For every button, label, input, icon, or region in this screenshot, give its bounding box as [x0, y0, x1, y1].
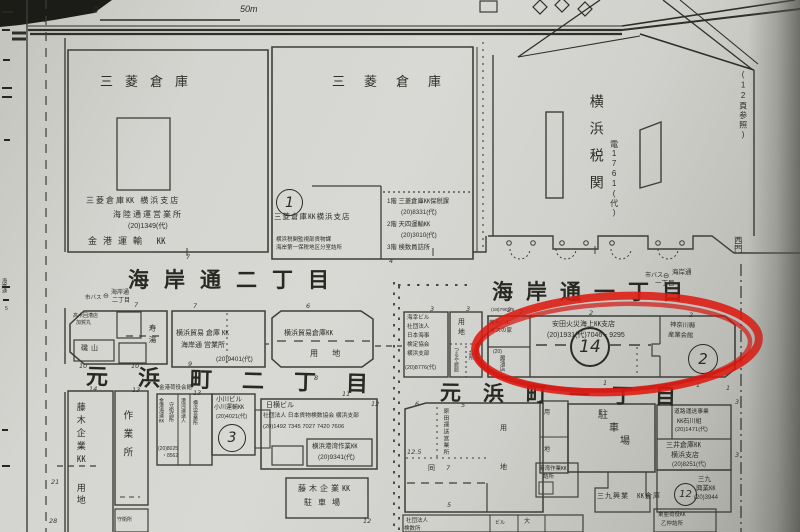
mitsubishi2-name: 三菱倉庫㏍横浜支店 [274, 212, 351, 221]
parking-char-2: 車 [609, 423, 619, 435]
bus-stop-left-chome: 二丁目 [112, 298, 130, 305]
forecourt-trees [507, 241, 685, 246]
kaiko-tel: (20)8776(代) [405, 365, 436, 372]
isoyama-name: 磯山 [81, 345, 101, 353]
yochi2-tenant1: つるや旅館 [453, 347, 459, 372]
kowan-tel: (20)9341(代) [318, 454, 355, 462]
lot-number-12: 12 [679, 489, 692, 500]
lot-number-2: 2 [698, 350, 708, 368]
dimension-number: 7 [446, 464, 450, 472]
cluster-v2: 守衛詰所 [168, 402, 174, 422]
dimension-number: 1 [726, 384, 730, 392]
harada-do: 同 [428, 465, 435, 473]
dimension-number: 3 [735, 398, 739, 406]
page-margin-ticks [2, 12, 13, 466]
toa-line1: 東亜荷役㏍ [658, 512, 686, 519]
dimension-number: 3 [430, 305, 434, 313]
dimension-number: 4 [389, 257, 393, 265]
mitsubishi1-note-1: 三菱倉庫㏍ 横浜支店 [86, 196, 180, 206]
bus-stop-left-agency: 市バス [85, 295, 102, 302]
dimension-number: 7 [134, 301, 138, 309]
kensu-line2: 社団法人 日本貨物検数協会 横浜支部 [263, 413, 359, 420]
bathhouse-name: 寿湯 [148, 324, 157, 347]
railway-lines [12, 0, 800, 70]
lot-number-3: 3 [228, 430, 237, 446]
ogawa-line1: 小川ビル [216, 396, 242, 404]
bottom-center-line2: 検数所 [404, 526, 421, 532]
boeki-line1: 横浜貿易 倉庫 ㏍ [176, 330, 229, 338]
annex-floor3: 3階 検数員詰所 [387, 244, 430, 252]
sanku-line1: 三九 [698, 476, 711, 484]
dimension-number: 7 [186, 253, 190, 261]
parking-char-3: 場 [620, 436, 630, 448]
west-gate-label: 西門 [733, 236, 743, 253]
dimension-number: 2 [589, 309, 593, 317]
dimension-number: 3 [466, 305, 470, 313]
lot-number-1: 1 [285, 195, 294, 211]
block14-cell1-line2: マスの家 [490, 328, 512, 335]
toa-line2: 乙仲詰所 [661, 521, 683, 528]
boeki-line2: 海岸通 営業所 [181, 342, 225, 350]
mitsubishi1-note-4: 金港運輸 ㏍ [88, 236, 172, 247]
bus-stop-right-icon: ⊖ [663, 271, 669, 280]
bus-stop-left-icon: ⊖ [103, 293, 109, 301]
dimension-number: 1 [603, 379, 607, 387]
dimension-number: 8 [314, 374, 318, 382]
forecourt-dotted-arcs [510, 249, 678, 259]
kensu-tel: (20)1492 7345 7027 7420 7606 [263, 424, 344, 431]
block-label-mitsubishi-2: 三菱倉庫 [332, 74, 460, 90]
harada-yo: 用 [500, 425, 507, 433]
lot-circle-2: 2 [688, 344, 718, 374]
dimension-number: 5 [461, 401, 465, 409]
harada-name: 原田運送営業所 [441, 408, 448, 456]
dimension-number: 2 [689, 311, 693, 319]
kaiko-line3: 日本海事 [407, 333, 429, 340]
dimension-number: 14 [89, 385, 97, 393]
mitsui-line1: 三井倉庫㏍ [666, 442, 701, 450]
harada-chi: 地 [500, 464, 507, 472]
dimension-number: 2 [507, 306, 511, 314]
cell540-chi: 地 [544, 447, 550, 454]
bottom-center-line1: 社団法人 [406, 518, 428, 525]
block14-cell2-name: 醤油店 [498, 355, 505, 372]
dimension-number: 11 [342, 390, 350, 398]
fujiki-yochi: 用地 [75, 483, 86, 507]
bottom-cell-c: 大 [524, 519, 530, 526]
block2-line1: 神奈川縣 [670, 322, 695, 330]
lot-circle-14: 14 [570, 327, 610, 367]
margin-side-label: 海岸通 [1, 278, 7, 293]
dimension-number: 10 [79, 362, 87, 370]
ogawa-tel: (20)4021(代) [216, 414, 247, 421]
sanku-line2: 興業㏍ [696, 485, 716, 493]
street-motohamacho-1: 元浜町一丁目 [440, 381, 698, 411]
ishikawa-line1: 道路運送事業 [674, 409, 709, 416]
street-kaigandori-2: 海岸通二丁目 [128, 268, 344, 293]
dimension-number: 10 [131, 362, 139, 370]
sagyo-sub: 守衛所 [117, 517, 132, 523]
map-photo: 0 50m 三菱倉庫 三菱倉庫 三菱倉庫㏍ 横浜支店 海陸通運営業所 (20)1… [0, 0, 800, 532]
dimension-number: 3 [735, 451, 739, 459]
customs-block [473, 55, 800, 259]
cluster-tel2: ・8562 [162, 453, 178, 459]
ogawa-line2: 小川運輸㏍ [214, 405, 244, 412]
dimension-number: 2 [519, 308, 523, 316]
margin-side-number: 5 [5, 306, 8, 312]
isoyama-note1: 高木回漕店 [73, 313, 98, 319]
kaikan-note: 金港荷役会館 [159, 385, 192, 392]
scale-end-label: 50m [240, 4, 258, 15]
bus-stop-right-road: 海岸通 [672, 269, 692, 277]
dimension-number: 12 [363, 517, 371, 525]
cluster-v3: 港湾運送人 [180, 398, 186, 423]
dimension-number: 7 [193, 302, 197, 310]
kensu-line1: 日横ビル [266, 402, 294, 410]
mitsubishi2-sub1: 横浜税関監視部貨物課 [276, 237, 331, 244]
dimension-number: 1 [696, 381, 700, 389]
boeki-tel: (20)9401(代) [216, 356, 253, 364]
lot-circle-3: 3 [218, 424, 246, 452]
bus-stop-right-chome: 一丁目 [655, 280, 675, 288]
customs-name: 横浜税関 [588, 94, 605, 202]
yochi2-label: 用地 [456, 318, 464, 338]
sanku-tel: (20)3944 [694, 495, 718, 502]
yochi1-line1: 横浜貿易倉庫㏍ [284, 330, 333, 338]
kaiko-line1: 海幸ビル [407, 315, 429, 322]
cluster-v1: 金港海運㏍ [158, 398, 164, 423]
lot-number-14: 14 [579, 337, 601, 357]
yochi2-tenant2: 詰所 [468, 350, 474, 360]
railway-crossing-diamonds [480, 0, 592, 16]
sagyo-name: 作業所 [121, 410, 132, 466]
annex-floor1-tel: (20)8331(代) [401, 209, 437, 217]
block14-cell1-line1: 横浜ビル [489, 320, 510, 326]
cluster-v4: 横浜営業所 [192, 400, 198, 425]
dimension-number: 6 [415, 400, 419, 408]
block-label-mitsubishi-1: 三菱倉庫 [100, 74, 200, 90]
sanku-warehouse-label: 三九興業 ㏍倉庫 [597, 493, 661, 501]
dimension-number: 5 [447, 501, 451, 509]
annex-floor2-tel: (20)3010(代) [401, 232, 437, 240]
annex-floor1: 1階 三菱倉庫㏍保税課 [387, 198, 449, 206]
ishikawa-line2: ㏍石川組 [677, 418, 702, 425]
dimension-number: 28 [49, 517, 57, 525]
customs-tel: 電1761(代) [609, 140, 619, 218]
mitsui-line2: 横浜支店 [671, 452, 699, 460]
mitsubishi1-tel: (20)1349(代) [128, 223, 168, 231]
parking-char-1: 駐 [598, 410, 608, 422]
kaiko-line4: 検定協会 [407, 342, 429, 349]
bottom-cell-b: ビル [495, 520, 505, 526]
mitsui-tel: (20)8251(代) [672, 462, 706, 469]
kaiko-line2: 社団法人 [407, 324, 429, 331]
dimension-number: 12 [371, 400, 379, 408]
fujiki-name: 藤木企業㏍ [75, 402, 86, 467]
ishikawa-tel: (20)1471(代) [675, 427, 708, 434]
fujiki-parking-line2: 駐車場 [304, 498, 346, 508]
dimension-number: 9 [188, 360, 192, 368]
dimension-number: 13 [132, 386, 140, 394]
block2-line2: 産業会館 [668, 332, 693, 340]
cluster-tel1: (20)8025 [158, 446, 178, 452]
kaiko-line5: 横浜支部 [407, 351, 429, 358]
dimension-number: 12.5 [407, 448, 421, 456]
cell540-yo: 用 [544, 410, 550, 417]
page-reference: (12頁参照) [738, 70, 748, 141]
fujiki-parking-line1: 藤木企業㏍ [298, 484, 353, 494]
isoyama-note2: 加賀丸 [76, 320, 91, 326]
mitsubishi2-sub2: 海岸第一保税地区分室詰所 [276, 245, 342, 252]
dimension-number: 21 [51, 478, 59, 486]
dimension-number: 13 [193, 389, 201, 397]
annex-floor2: 2階 天四運輸㏍ [387, 221, 430, 229]
dimension-number: 6 [306, 302, 310, 310]
t540-line2: 詰所 [543, 474, 554, 481]
scale-zero: 0 [93, 5, 98, 16]
yochi1-line2: 用 地 [310, 349, 346, 359]
t540-line1: 港湾作業㏍ [539, 466, 567, 473]
bus-stop-left-road: 海岸通 [111, 290, 129, 297]
kowan-line1: 横浜港湾作業㏍ [312, 443, 358, 451]
mitsubishi1-note-2: 海陸通運営業所 [113, 210, 183, 220]
